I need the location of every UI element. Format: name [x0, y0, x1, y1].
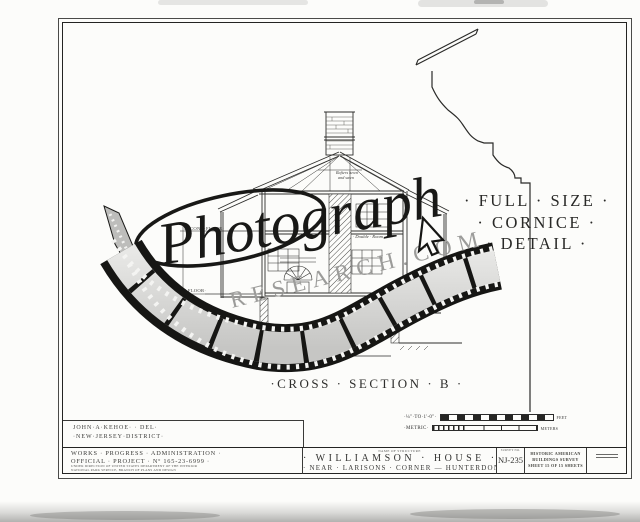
imperial-scale-row: ·¼"·TO·1'-0"· FEET	[404, 414, 584, 421]
cross-section-caption: ·CROSS · SECTION · B ·	[262, 376, 472, 392]
structure-location: · NEAR · LARISONS · CORNER — HUNTERDON ·…	[303, 464, 496, 473]
cornice-detail-caption: · FULL · SIZE · · CORNICE · · DETAIL ·	[452, 190, 622, 255]
imperial-scale-bar	[440, 414, 554, 421]
illegible-microtext-line	[596, 454, 618, 455]
agency-line3: SHEET 15 OF 15 SHEETS	[525, 463, 586, 469]
graphic-scales: ·¼"·TO·1'-0"· FEET ·METRIC· METERS	[404, 414, 584, 435]
metric-scale-label: ·METRIC·	[404, 426, 429, 431]
structure-name-cell: NAME OF STRUCTURE · WILLIAMSON · HOUSE ·…	[303, 448, 497, 474]
scanned-habs-sheet: Rafters hewn and sawn SECOND·FLOOR· FIRS…	[0, 0, 640, 522]
wpa-project-cell: WORKS · PROGRESS · ADMINISTRATION · OFFI…	[63, 448, 303, 474]
wpa-line1: WORKS · PROGRESS · ADMINISTRATION ·	[71, 450, 302, 458]
delineator-name: JOHN·A·KEHOE· · DEL·	[73, 424, 303, 433]
metric-scale-unit: METERS	[541, 426, 559, 431]
metric-scale-row: ·METRIC· METERS	[404, 425, 584, 431]
delineator-box: JOHN·A·KEHOE· · DEL· ·NEW·JERSEY·DISTRIC…	[63, 420, 304, 447]
wpa-fine-line2: NATIONAL PARK SERVICE, BRANCH OF PLANS A…	[71, 469, 302, 473]
illegible-microtext-line	[596, 457, 618, 458]
credit-cell	[587, 448, 627, 474]
survey-number: NJ-235	[497, 453, 524, 468]
cornice-caption-line: · FULL · SIZE ·	[452, 190, 622, 212]
structure-name: · WILLIAMSON · HOUSE ·	[303, 453, 496, 464]
cornice-caption-line: · CORNICE ·	[452, 212, 622, 234]
habs-agency-cell: HISTORIC AMERICAN BUILDINGS SURVEY SHEET…	[525, 448, 587, 474]
delineator-district: ·NEW·JERSEY·DISTRICT·	[73, 433, 303, 442]
imperial-scale-unit: FEET	[557, 415, 568, 420]
chimney	[324, 112, 355, 155]
title-block: WORKS · PROGRESS · ADMINISTRATION · OFFI…	[63, 447, 627, 474]
cornice-caption-line: · DETAIL ·	[452, 233, 622, 255]
metric-scale-bar	[432, 425, 538, 431]
imperial-scale-label: ·¼"·TO·1'-0"·	[404, 415, 437, 420]
survey-number-cell: SURVEY NO. NJ-235	[497, 448, 525, 474]
